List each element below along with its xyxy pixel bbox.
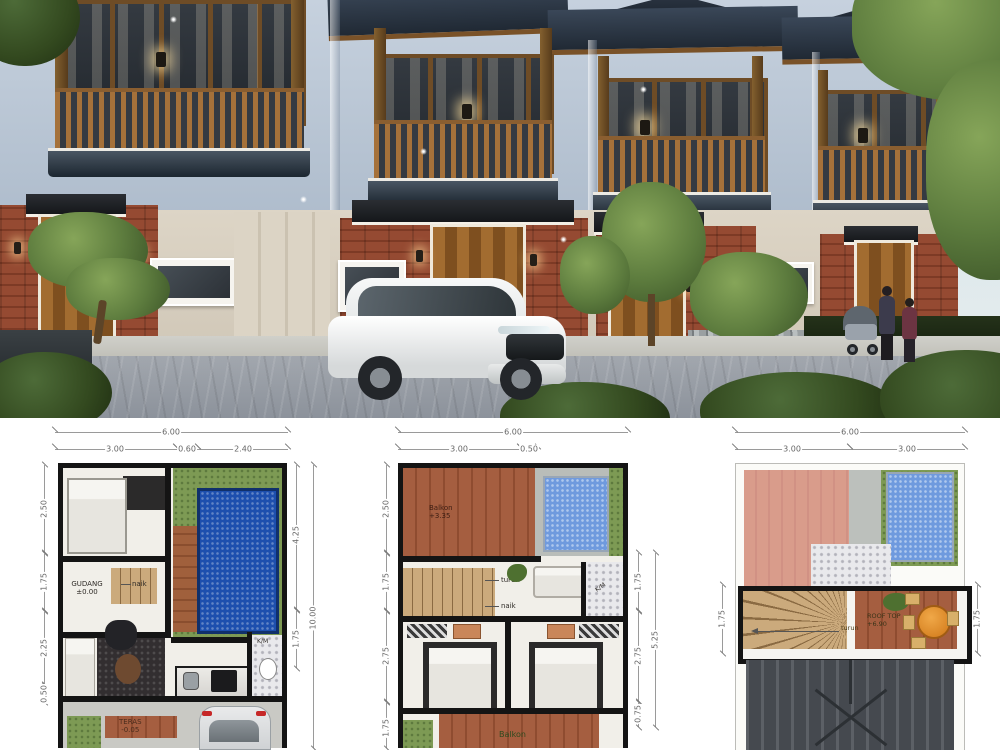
suv-headlight [498,326,550,334]
bed [67,478,127,554]
nightstand [547,624,575,639]
dim-label: 1.75 [292,629,301,649]
suv-wheel [500,358,542,400]
wall-sconce [14,242,21,254]
bed-frame [423,642,497,708]
dim-label: 3.00 [782,445,802,454]
dim-label: 0.75 [634,704,643,724]
stroller-body [845,324,877,340]
dim-label: 6.00 [161,428,181,437]
glint [420,148,427,155]
suv-windows [358,286,516,320]
nightstand [453,624,481,639]
plan-rooftop: ROOF TOP +6.90 turun [735,463,965,750]
mattress [535,648,597,708]
interior-wall [63,556,171,562]
bed-frame [529,642,603,708]
mattress [429,648,491,708]
plant [507,564,527,582]
garden-strip [609,468,623,556]
balkon-deck [403,468,535,556]
room-label-gudang: GUDANG ±0.00 [65,580,109,597]
dim-label: 1.75 [634,572,643,592]
dim-label: 1.75 [40,572,49,592]
swimming-pool [197,488,279,634]
dim-label: 0.50 [40,684,49,704]
wall-lantern-unit2 [462,104,472,119]
wall-sconce [416,250,423,262]
side-garden [403,720,433,748]
chair [947,611,959,626]
roof-ridge [849,660,852,704]
leader-line [485,606,499,607]
dim-label: 3.00 [897,445,917,454]
wall-sconce [530,254,537,266]
rooftop-level: +6.90 [867,620,887,628]
tree-trunk [648,294,655,346]
dim-label: 3.00 [449,445,469,454]
glint [300,196,307,203]
plan-upper-floor: Balkon +3.35 turun naik K/M [398,463,628,748]
teras-text: TERAS [119,718,142,726]
glint [640,86,647,93]
person [900,298,920,362]
car-taillight [256,711,266,716]
glint [560,236,567,243]
rooftop-terrace: ROOF TOP +6.90 turun [738,586,972,664]
interior-wall [403,616,623,622]
leader-line [485,580,499,581]
suv-wheel [358,356,402,400]
gudang-text: GUDANG [71,580,102,588]
car-taillight [202,711,212,716]
person-head [905,298,914,307]
dim-label: 2.40 [233,445,253,454]
dim-label: 2.50 [40,499,49,519]
tree [560,236,630,314]
teras-level: -0.05 [121,726,139,734]
dim-label: 0.50 [519,445,539,454]
stroller-wheel [847,344,858,355]
round-table [115,654,141,684]
dim-label: 1.75 [382,572,391,592]
window-hatch [579,624,619,638]
person-head [882,286,892,296]
wall-lantern-unit1 [156,52,166,67]
dim-label: 6.00 [503,428,523,437]
concrete-pad [811,544,891,586]
leader-arrow [757,631,839,632]
person [876,286,898,360]
kitchen-sink [183,672,199,690]
dim-label: 4.25 [292,525,301,545]
stairs-up-label: naik [132,580,147,588]
glint [170,16,177,23]
window-hatch [407,624,447,638]
floor-plan-sheet: 6.00 3.00 0.60 2.40 2.50 1.75 2.25 0.50 … [0,418,1000,750]
exterior-render [0,0,1000,418]
hedge [690,252,808,340]
wall-lantern-unit4 [858,128,868,143]
interior-wall [165,468,171,638]
car-rear-glass [209,720,259,742]
chair [911,637,926,649]
pool-below [543,476,609,552]
balkon-level: +3.35 [429,512,450,520]
interior-wall [505,622,511,708]
property-listing-image: 6.00 3.00 0.60 2.40 2.50 1.75 2.25 0.50 … [0,0,1000,750]
plan-ground-floor: GUDANG ±0.00 naik K/M [58,463,287,748]
stairs-down-label: turun [841,625,859,633]
front-garden [67,716,101,748]
balkon-bottom-label: Balkon [499,730,526,740]
dim-label: 0.60 [177,445,197,454]
dim-label: 1.75 [718,609,727,629]
gudang-level: ±0.00 [76,588,97,596]
balcony-base-unit1 [48,148,310,177]
teras-label: TERAS -0.05 [119,718,142,735]
dim-label: 2.50 [382,499,391,519]
dim-label: 2.25 [40,638,49,658]
balkon-label: Balkon +3.35 [429,504,453,521]
round-table [917,605,951,639]
suv-grille [506,334,564,360]
person-body [879,296,895,336]
wall-lantern-unit3 [640,120,650,135]
person-body [902,307,917,341]
toilet [259,658,277,680]
balkon-text: Balkon [429,504,453,512]
pool-deck [173,526,197,632]
white-suv [328,272,566,400]
dim-label: 10.00 [309,606,318,631]
dim-label: 1.75 [382,718,391,738]
chair [905,593,920,605]
interior-wall [403,556,541,562]
wardrobe [123,476,165,510]
door-canopy-unit2 [352,200,574,225]
rooftop-text: ROOF TOP [867,612,901,620]
dim-label: 6.00 [840,428,860,437]
person-legs [881,334,893,360]
person-legs [904,339,915,362]
stove [211,670,237,692]
dim-label: 5.25 [651,630,660,650]
dim-label: 3.00 [105,445,125,454]
dim-label: 2.75 [634,646,643,666]
stairs-up-label: naik [501,602,516,610]
bathroom-floor [586,562,623,618]
leader-line [121,584,131,585]
roof-unit3 [548,6,799,55]
dim-label: 2.75 [382,646,391,666]
stairs [403,568,495,616]
cabinet [65,638,95,698]
frangipani-tree [66,258,170,320]
fan-stairs [743,591,847,649]
bath-label: K/M [257,638,268,645]
dim-label: 1.75 [973,609,982,629]
chair [903,615,915,630]
rooftop-label: ROOF TOP +6.90 [867,613,901,629]
desk-chair [105,620,137,650]
pool-below [886,472,954,562]
arrowhead [751,628,758,634]
